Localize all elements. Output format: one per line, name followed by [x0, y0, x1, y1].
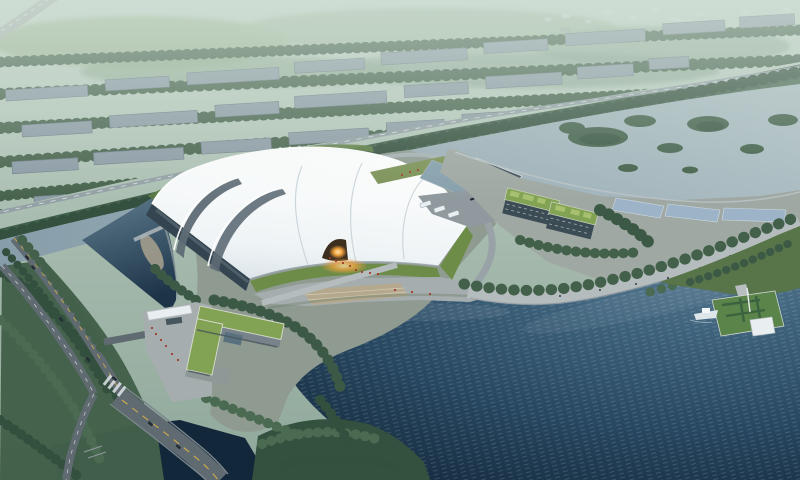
pier-pavilion [750, 317, 775, 336]
aerial-rendering [0, 0, 800, 480]
plaza-glow [320, 258, 368, 274]
aerial-rendering-stage [0, 0, 800, 480]
boat-cabin [702, 308, 710, 313]
haze-overlay [0, 0, 800, 200]
entrance-glow [329, 245, 347, 259]
